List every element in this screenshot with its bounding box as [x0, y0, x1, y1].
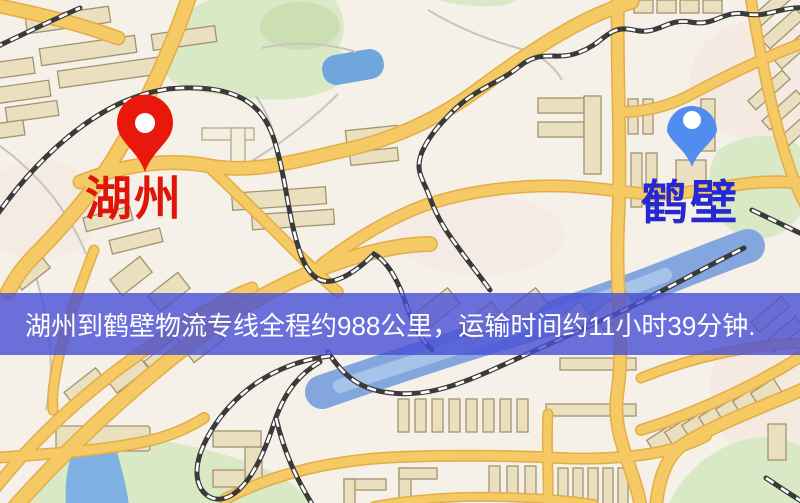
map-image — [0, 0, 800, 503]
map-canvas[interactable]: 湖州 鹤壁 湖州到鹤壁物流专线全程约988公里，运输时间约11小时39分钟. — [0, 0, 800, 503]
destination-city-label: 鹤壁 — [641, 179, 739, 226]
origin-city-label: 湖州 — [85, 175, 183, 222]
blue-pin-icon[interactable] — [667, 106, 717, 167]
route-info-text: 湖州到鹤壁物流专线全程约988公里，运输时间约11小时39分钟. — [25, 306, 756, 343]
route-info-banner: 湖州到鹤壁物流专线全程约988公里，运输时间约11小时39分钟. — [0, 293, 800, 355]
